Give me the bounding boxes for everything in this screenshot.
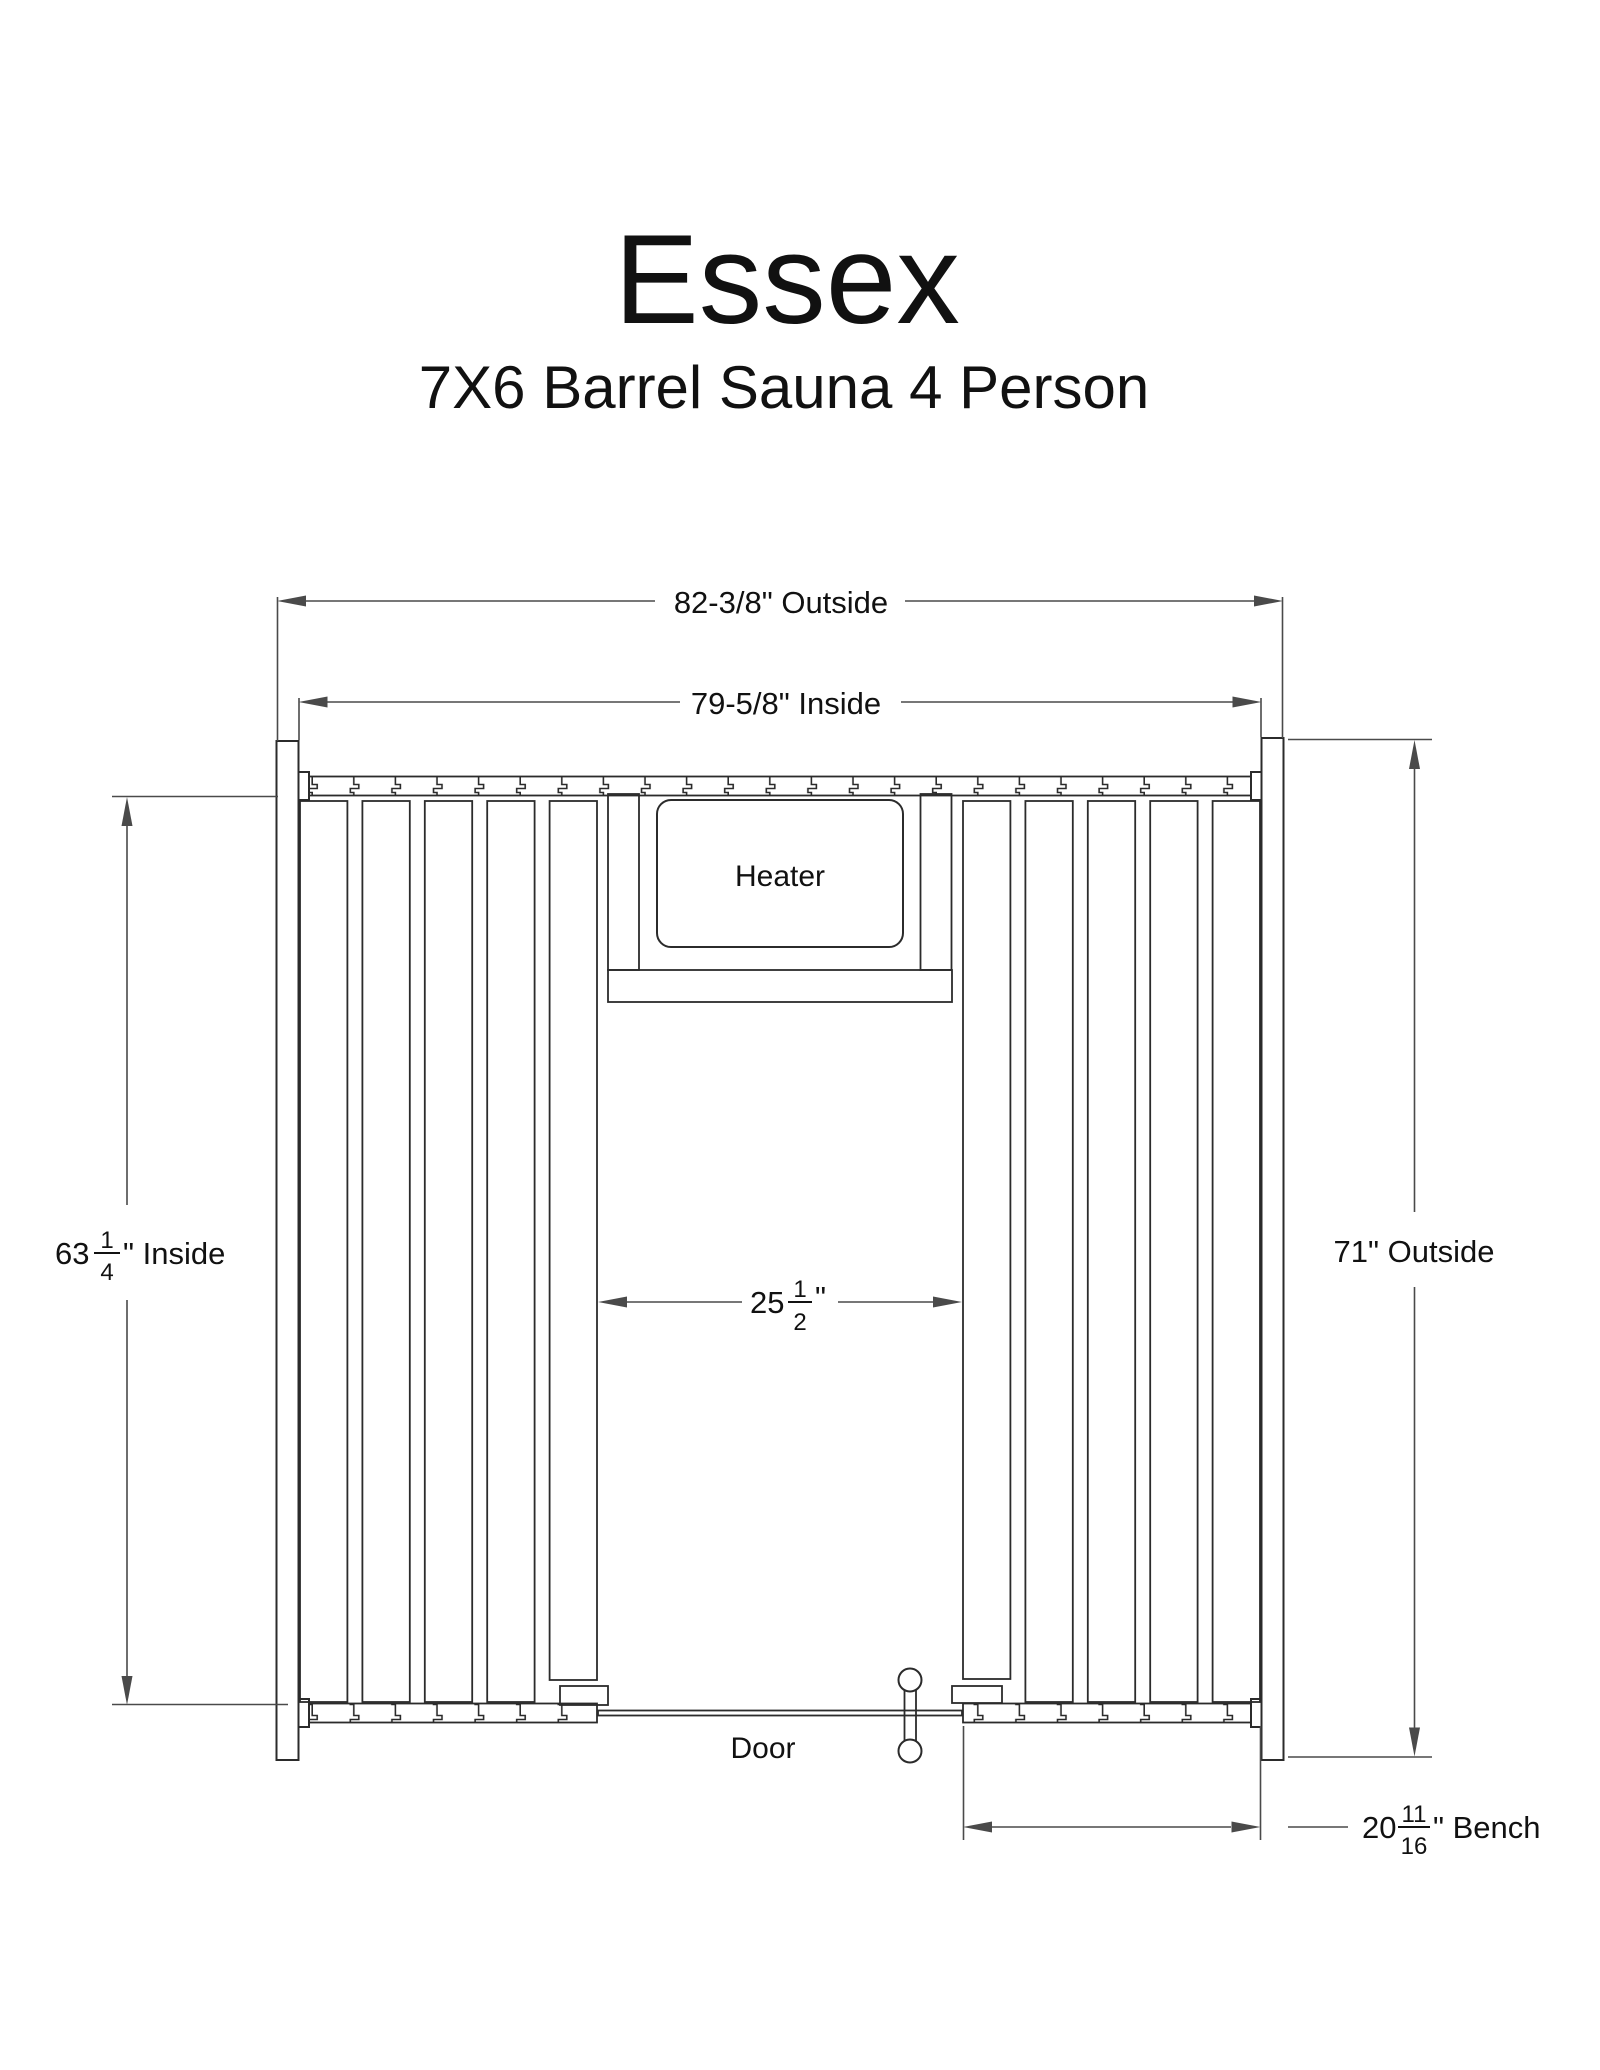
- arrowhead-left: [598, 1297, 627, 1308]
- right-cradle-rail: [1262, 738, 1284, 1760]
- right-bench: [952, 801, 1260, 1703]
- bench-slat: [425, 801, 472, 1702]
- left-cradle-rail: [277, 741, 299, 1760]
- right-bench-foot: [952, 1686, 1002, 1703]
- page: { "header": { "title": "Essex", "subtitl…: [0, 0, 1600, 2070]
- arrowhead-up: [1409, 740, 1420, 769]
- heater-assembly: Heater: [608, 794, 952, 1002]
- left-bench-foot: [560, 1686, 608, 1705]
- door-width-suffix: ": [815, 1280, 826, 1315]
- door-group: Door: [598, 1669, 962, 1766]
- sauna-plan-sheet: Essex 7X6 Barrel Sauna 4 Person: [0, 0, 1600, 2070]
- heater-platform: [608, 970, 952, 1002]
- inside-height-denominator: 4: [100, 1259, 113, 1286]
- door-leaf: [598, 1711, 962, 1716]
- page-subtitle: 7X6 Barrel Sauna 4 Person: [419, 354, 1149, 421]
- door-label: Door: [730, 1732, 795, 1765]
- heater-label: Heater: [735, 860, 825, 893]
- arrowhead-down: [122, 1676, 133, 1705]
- left-bench: [300, 801, 608, 1705]
- door-width-denominator: 2: [793, 1309, 806, 1336]
- heater-post-right: [921, 794, 952, 970]
- bench-slat: [300, 801, 347, 1702]
- inside-height-numerator: 1: [100, 1227, 113, 1254]
- bench-depth-denominator: 16: [1401, 1833, 1428, 1860]
- bench-slat: [1088, 801, 1135, 1702]
- bench-slat: [362, 801, 409, 1702]
- dimension-outside-height: 71" Outside: [1288, 740, 1494, 1758]
- inside-width-label: 79-5/8" Inside: [691, 686, 881, 721]
- arrowhead-right: [1254, 596, 1283, 607]
- bench-slat: [1025, 801, 1072, 1702]
- door-width-numerator: 1: [793, 1276, 806, 1303]
- door-width-whole: 25: [750, 1285, 784, 1320]
- arrowhead-up: [122, 797, 133, 826]
- bench-slat: [550, 801, 597, 1680]
- dimension-door-width: 25 1 2 ": [598, 1276, 962, 1336]
- door-handle-knob-top: [899, 1669, 922, 1692]
- arrowhead-down: [1409, 1728, 1420, 1757]
- bench-depth-numerator: 11: [1402, 1801, 1427, 1828]
- inside-height-whole: 63: [55, 1236, 89, 1271]
- inside-height-suffix: " Inside: [123, 1236, 225, 1271]
- bench-slat: [963, 801, 1010, 1679]
- arrowhead-right: [1232, 1822, 1261, 1833]
- arrowhead-left: [963, 1822, 992, 1833]
- bottom-wall-right: [963, 1699, 1273, 1727]
- bench-slat: [1150, 801, 1197, 1702]
- page-title: Essex: [614, 208, 960, 350]
- bench-depth-whole: 20: [1362, 1810, 1396, 1845]
- bottom-wall-left: [287, 1699, 597, 1727]
- arrowhead-left: [277, 596, 306, 607]
- bench-depth-suffix: " Bench: [1433, 1810, 1541, 1845]
- heater-post-left: [608, 794, 639, 970]
- dimension-inside-width: 79-5/8" Inside: [299, 686, 1262, 740]
- top-wall: [287, 772, 1273, 800]
- technical-drawing: Essex 7X6 Barrel Sauna 4 Person: [0, 0, 1600, 2070]
- arrowhead-right: [933, 1297, 962, 1308]
- outside-width-label: 82-3/8" Outside: [674, 585, 888, 620]
- dimension-bench-depth: 20 11 16 " Bench: [963, 1726, 1541, 1860]
- dimension-inside-height: 63 1 4 " Inside: [55, 797, 288, 1706]
- arrowhead-right: [1233, 697, 1262, 708]
- arrowhead-left: [299, 697, 328, 708]
- bench-slat: [487, 801, 534, 1702]
- outside-height-label: 71" Outside: [1334, 1234, 1495, 1269]
- bench-slat: [1213, 801, 1260, 1702]
- door-handle-knob-bottom: [899, 1740, 922, 1763]
